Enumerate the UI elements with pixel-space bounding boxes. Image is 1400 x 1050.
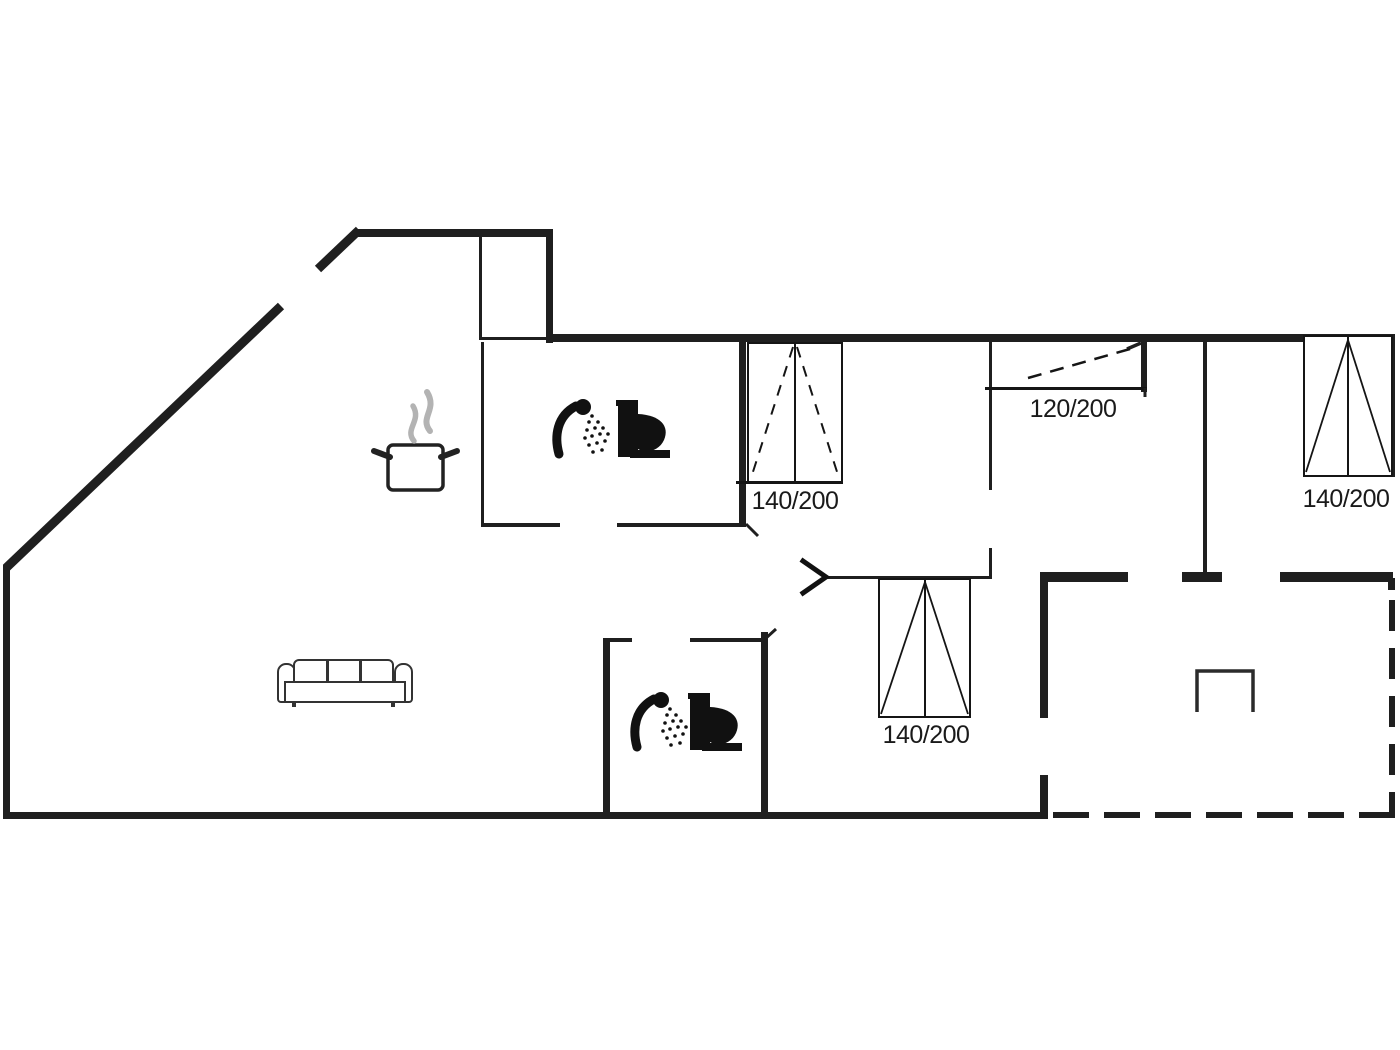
bed-top-right-label: 140/200 (1291, 486, 1400, 512)
toilet-icon-bath1 (616, 400, 670, 458)
shower-icon-bath2 (635, 692, 688, 747)
bed-top-right-leg-l (1306, 340, 1348, 472)
bed-bottom-middle-label: 140/200 (871, 722, 981, 748)
steam-icon (411, 392, 431, 441)
terrace-grill-icon (1197, 671, 1253, 712)
bed-top-left-dash-l (751, 347, 793, 478)
bed-top-middle-label: 120/200 (1018, 396, 1128, 422)
bed-bottom-middle-leg-l (881, 582, 925, 714)
bed-top-left-label: 140/200 (740, 488, 850, 514)
wall-diagonal-upper (318, 230, 359, 269)
door-tick-bath1 (746, 524, 758, 536)
plan-linework (0, 0, 1400, 1050)
wall-diagonal-lower (6, 306, 281, 568)
sofa-foot (391, 703, 395, 707)
toilet-icon-bath2 (688, 693, 742, 751)
cooking-pot-icon (374, 445, 457, 490)
shower-icon-bath1 (557, 399, 610, 454)
bed-bottom-middle-leg-r (925, 582, 968, 714)
sofa-icon (277, 657, 413, 707)
door-tick-bath2 (765, 629, 776, 639)
door-chevron-icon (803, 561, 826, 593)
sofa-seat (284, 681, 406, 703)
floor-plan: 140/200 120/200 140/200 140/200 (0, 0, 1400, 1050)
bed-top-right-leg-r (1348, 340, 1390, 472)
sofa-foot (292, 703, 296, 707)
bed-top-left-dash-r (797, 347, 839, 478)
bed-top-middle-dash (1028, 347, 1137, 378)
